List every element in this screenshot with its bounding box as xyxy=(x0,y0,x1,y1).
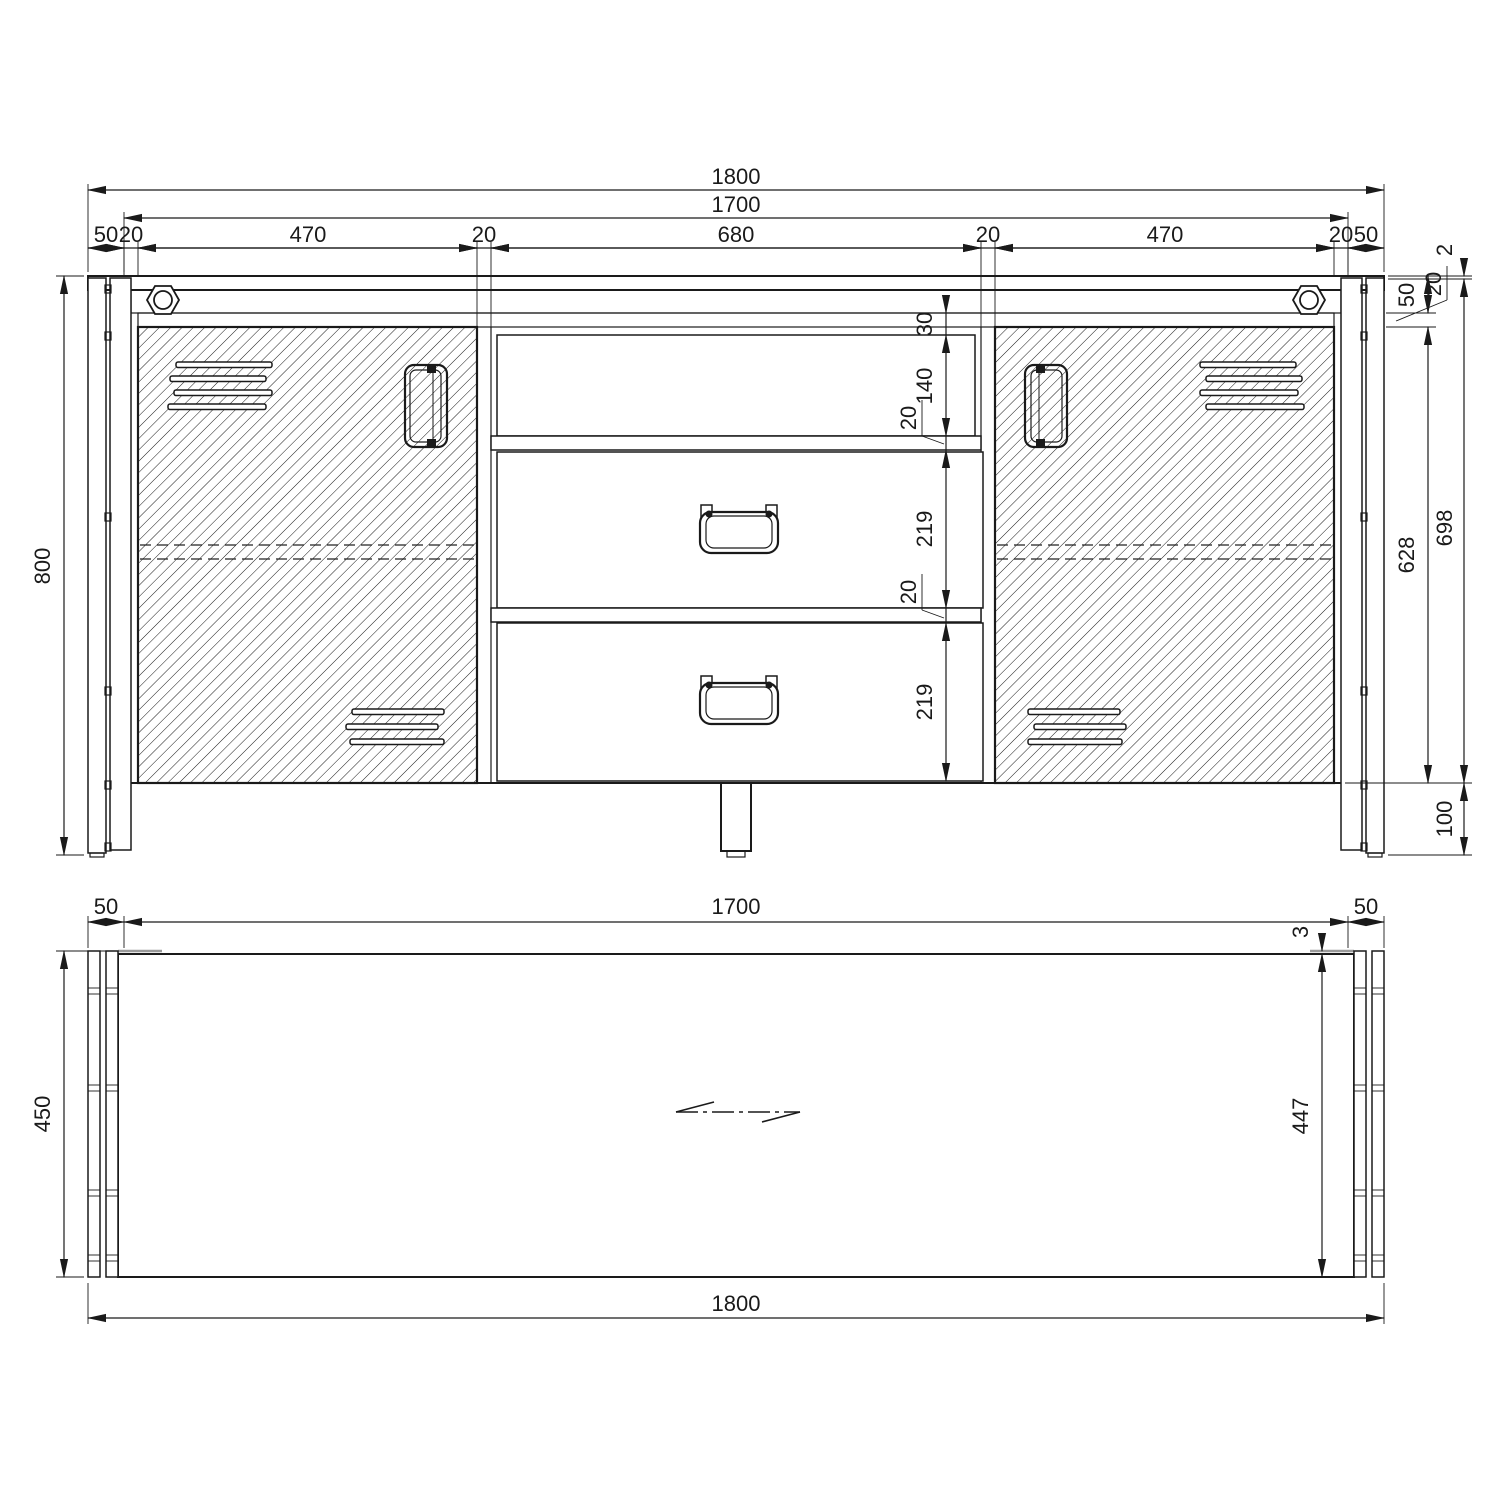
dim-plan-inner-depth: 3 447 xyxy=(1288,926,1322,1277)
plan-right-legs xyxy=(1354,951,1384,1277)
dim-label: 470 xyxy=(1147,222,1184,247)
shelf-board xyxy=(491,436,981,450)
dim-plan-total-width: 1800 xyxy=(88,1283,1384,1324)
right-door-bottom-vents xyxy=(1028,709,1126,745)
dim-label: 1800 xyxy=(712,164,761,189)
center-foot xyxy=(721,783,751,857)
drawer-divider-board xyxy=(491,608,981,622)
left-leg-assembly xyxy=(88,278,131,857)
dim-label: 20 xyxy=(976,222,1000,247)
centerline-symbol xyxy=(676,1102,800,1122)
plan-left-legs xyxy=(88,951,118,1277)
dim-label: 219 xyxy=(912,684,937,721)
dim-label: 140 xyxy=(912,368,937,405)
drawer-top-handle xyxy=(700,505,778,553)
dim-label: 50 xyxy=(94,222,118,247)
dim-label: 50 xyxy=(1354,894,1378,919)
dim-label: 2 xyxy=(1432,244,1457,256)
dim-label: 1700 xyxy=(712,192,761,217)
dim-label: 698 xyxy=(1432,510,1457,547)
dim-label: 20 xyxy=(896,580,921,604)
plan-view: 50 1700 50 1800 450 3 447 xyxy=(30,894,1384,1324)
dim-label: 470 xyxy=(290,222,327,247)
right-leg-assembly xyxy=(1341,278,1384,857)
plan-dimensions: 50 1700 50 1800 450 3 447 xyxy=(30,894,1384,1324)
carcass-top-board xyxy=(138,313,1334,327)
dim-front-width-chain: 50 20 470 20 680 20 470 20 50 xyxy=(88,222,1384,327)
technical-drawing: 1800 1700 xyxy=(0,0,1500,1500)
dim-label: 50 xyxy=(1354,222,1378,247)
dim-plan-top-chain: 50 1700 50 xyxy=(88,894,1384,948)
dim-label: 20 xyxy=(472,222,496,247)
left-door-bottom-vents xyxy=(346,709,444,745)
dim-label: 680 xyxy=(718,222,755,247)
dim-label: 3 xyxy=(1288,926,1313,938)
dim-label: 628 xyxy=(1394,537,1419,574)
dim-label: 447 xyxy=(1288,1098,1313,1135)
dim-front-right-side: 50 20 628 2 698 100 xyxy=(1345,244,1472,855)
dim-label: 1700 xyxy=(712,894,761,919)
dim-label: 20 xyxy=(1421,272,1446,296)
dim-label: 20 xyxy=(896,406,921,430)
right-hex-bolt xyxy=(1293,286,1325,314)
top-rail xyxy=(131,290,1341,313)
dim-label: 20 xyxy=(1329,222,1353,247)
dim-label: 100 xyxy=(1432,801,1457,838)
dim-label: 50 xyxy=(1394,283,1419,307)
dim-label: 50 xyxy=(94,894,118,919)
dim-plan-depth: 450 xyxy=(30,951,114,1277)
dim-label: 30 xyxy=(912,312,937,336)
drawer-bottom-handle xyxy=(700,676,778,724)
left-hex-bolt xyxy=(147,286,179,314)
top-panel xyxy=(88,276,1384,290)
drawing-sheet: 1800 1700 xyxy=(0,0,1500,1500)
front-view: 1800 1700 xyxy=(30,164,1472,857)
dim-label: 1800 xyxy=(712,1291,761,1316)
top-panel-outline xyxy=(118,954,1354,1277)
dim-front-height: 800 xyxy=(30,276,84,855)
dim-label: 20 xyxy=(119,222,143,247)
dim-label: 219 xyxy=(912,511,937,548)
dim-label: 800 xyxy=(30,548,55,585)
dim-label: 450 xyxy=(30,1096,55,1133)
